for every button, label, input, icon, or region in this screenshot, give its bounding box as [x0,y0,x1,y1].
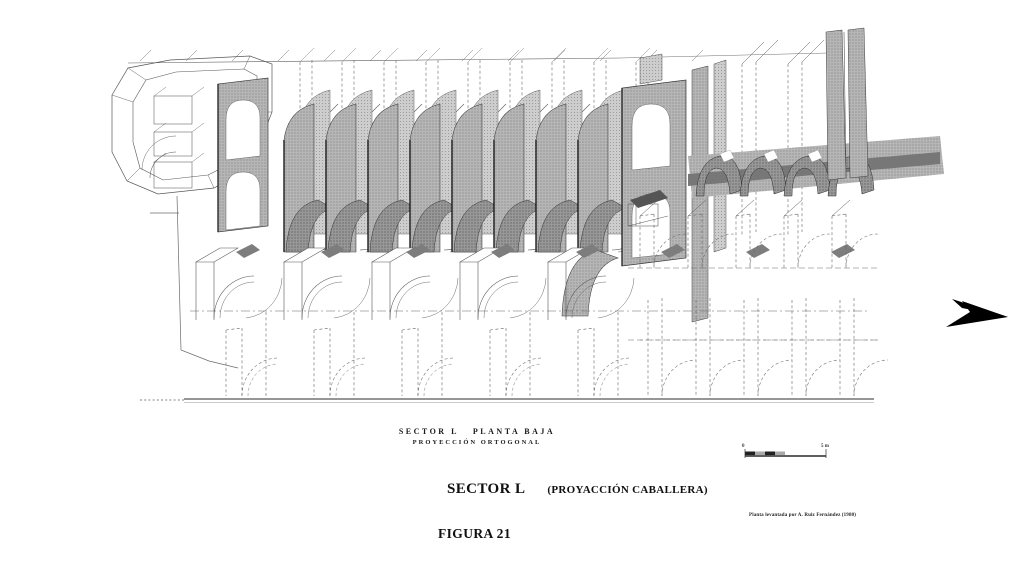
drawing-linework [112,28,944,403]
scale-bar [745,449,826,458]
caption-sector: SECTOR L [399,427,459,436]
direction-arrow-icon [946,299,1008,327]
caption-line1: SECTOR LPLANTA BAJA [352,427,602,436]
title-projection: (PROYACCIÓN CABALLERA) [547,484,708,496]
scale-end-label: 5 m [821,444,829,449]
plate-title: SECTOR L (PROYACCIÓN CABALLERA) [447,481,708,498]
caption-plan: PLANTA BAJA [473,427,555,436]
credit-line: Planta levantada por A. Ruiz Fernández (… [749,513,856,518]
figure-number: FIGURA 21 [438,526,511,542]
title-sector: SECTOR L [447,481,525,498]
caption-orthogonal: SECTOR LPLANTA BAJA PROYECCIÓN ORTOGONAL [352,427,602,446]
scale-start-label: 0 [742,444,745,449]
figure-plate: SECTOR LPLANTA BAJA PROYECCIÓN ORTOGONAL… [0,0,1024,578]
caption-line2: PROYECCIÓN ORTOGONAL [352,439,602,446]
